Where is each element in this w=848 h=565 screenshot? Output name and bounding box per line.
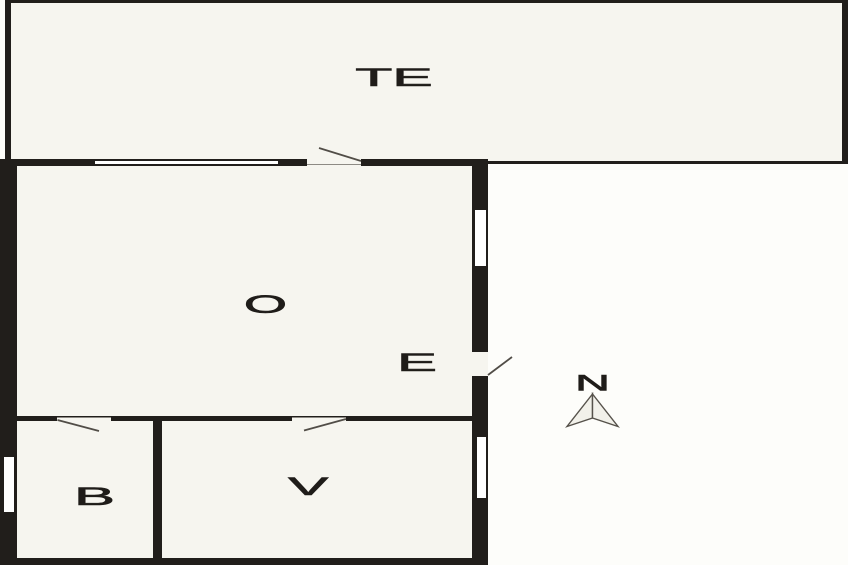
svg-text:O: O — [244, 291, 287, 319]
svg-text:N: N — [575, 371, 610, 396]
svg-text:E: E — [397, 348, 437, 376]
svg-text:TE: TE — [355, 64, 433, 92]
svg-text:B: B — [74, 483, 115, 511]
svg-text:V: V — [288, 472, 328, 500]
